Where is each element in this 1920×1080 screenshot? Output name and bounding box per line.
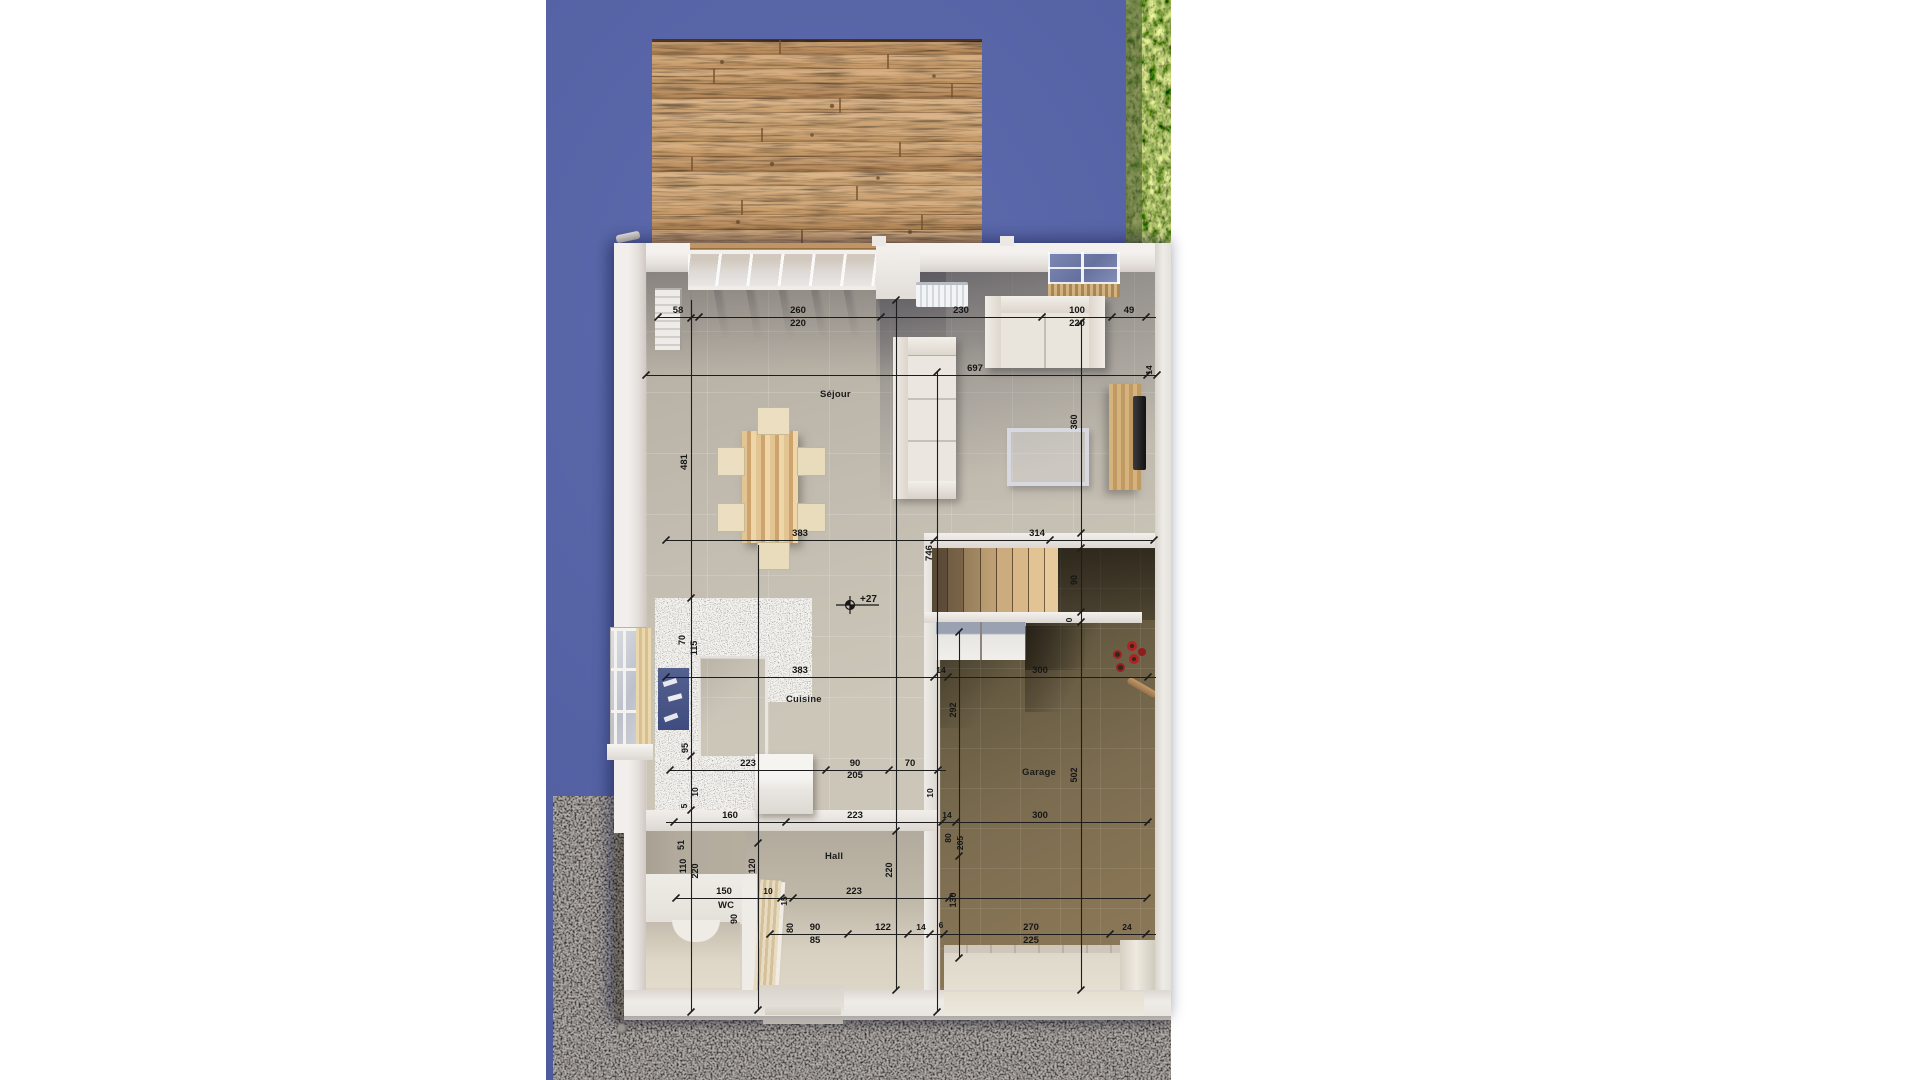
svg-text:223: 223 (846, 886, 862, 897)
svg-text:697: 697 (967, 363, 983, 374)
svg-text:314: 314 (1029, 528, 1046, 539)
svg-text:10: 10 (690, 787, 700, 797)
svg-text:58: 58 (673, 305, 684, 316)
svg-text:14: 14 (936, 665, 946, 675)
svg-text:6: 6 (939, 920, 944, 930)
svg-text:746: 746 (924, 545, 935, 561)
svg-text:90: 90 (810, 922, 821, 933)
svg-text:115: 115 (689, 641, 699, 656)
svg-text:223: 223 (847, 810, 863, 821)
svg-text:360: 360 (1069, 414, 1079, 429)
svg-text:205: 205 (847, 770, 864, 781)
svg-text:51: 51 (676, 840, 686, 850)
svg-text:24: 24 (1122, 922, 1132, 932)
svg-text:90: 90 (850, 758, 861, 769)
svg-text:292: 292 (948, 702, 958, 717)
svg-text:10: 10 (925, 788, 935, 798)
svg-text:110: 110 (678, 859, 688, 874)
svg-text:10: 10 (763, 886, 773, 896)
svg-text:270: 270 (1023, 922, 1039, 933)
svg-text:300: 300 (1032, 665, 1048, 676)
svg-text:220: 220 (1069, 318, 1085, 329)
svg-text:481: 481 (679, 453, 690, 470)
svg-text:130: 130 (948, 892, 958, 907)
svg-text:70: 70 (905, 758, 916, 769)
svg-text:122: 122 (875, 922, 891, 933)
svg-text:220: 220 (884, 862, 894, 877)
svg-text:90: 90 (729, 914, 739, 924)
svg-text:15: 15 (779, 896, 789, 906)
svg-text:+27: +27 (860, 594, 877, 605)
svg-text:260: 260 (790, 305, 806, 316)
svg-text:383: 383 (792, 665, 808, 676)
svg-text:220: 220 (790, 318, 806, 329)
svg-text:502: 502 (1069, 767, 1079, 782)
svg-text:90: 90 (1069, 575, 1079, 585)
svg-text:80: 80 (943, 833, 953, 843)
svg-text:100: 100 (1069, 305, 1085, 316)
svg-text:160: 160 (722, 810, 738, 821)
svg-text:14: 14 (942, 810, 952, 820)
svg-text:150: 150 (716, 886, 732, 897)
svg-text:120: 120 (747, 858, 757, 873)
svg-text:49: 49 (1124, 305, 1135, 316)
svg-text:300: 300 (1032, 810, 1048, 821)
svg-text:220: 220 (690, 863, 700, 878)
svg-text:383: 383 (792, 528, 808, 539)
svg-text:14: 14 (1144, 365, 1154, 375)
svg-text:223: 223 (740, 758, 756, 769)
svg-text:70: 70 (677, 635, 687, 645)
svg-text:0: 0 (1064, 617, 1074, 622)
svg-text:95: 95 (680, 743, 690, 753)
svg-text:205: 205 (955, 836, 965, 850)
svg-text:14: 14 (916, 922, 926, 932)
svg-text:80: 80 (785, 923, 795, 933)
svg-text:85: 85 (810, 935, 821, 946)
svg-text:230: 230 (953, 305, 969, 316)
svg-text:5: 5 (679, 803, 689, 808)
svg-text:225: 225 (1023, 935, 1040, 946)
